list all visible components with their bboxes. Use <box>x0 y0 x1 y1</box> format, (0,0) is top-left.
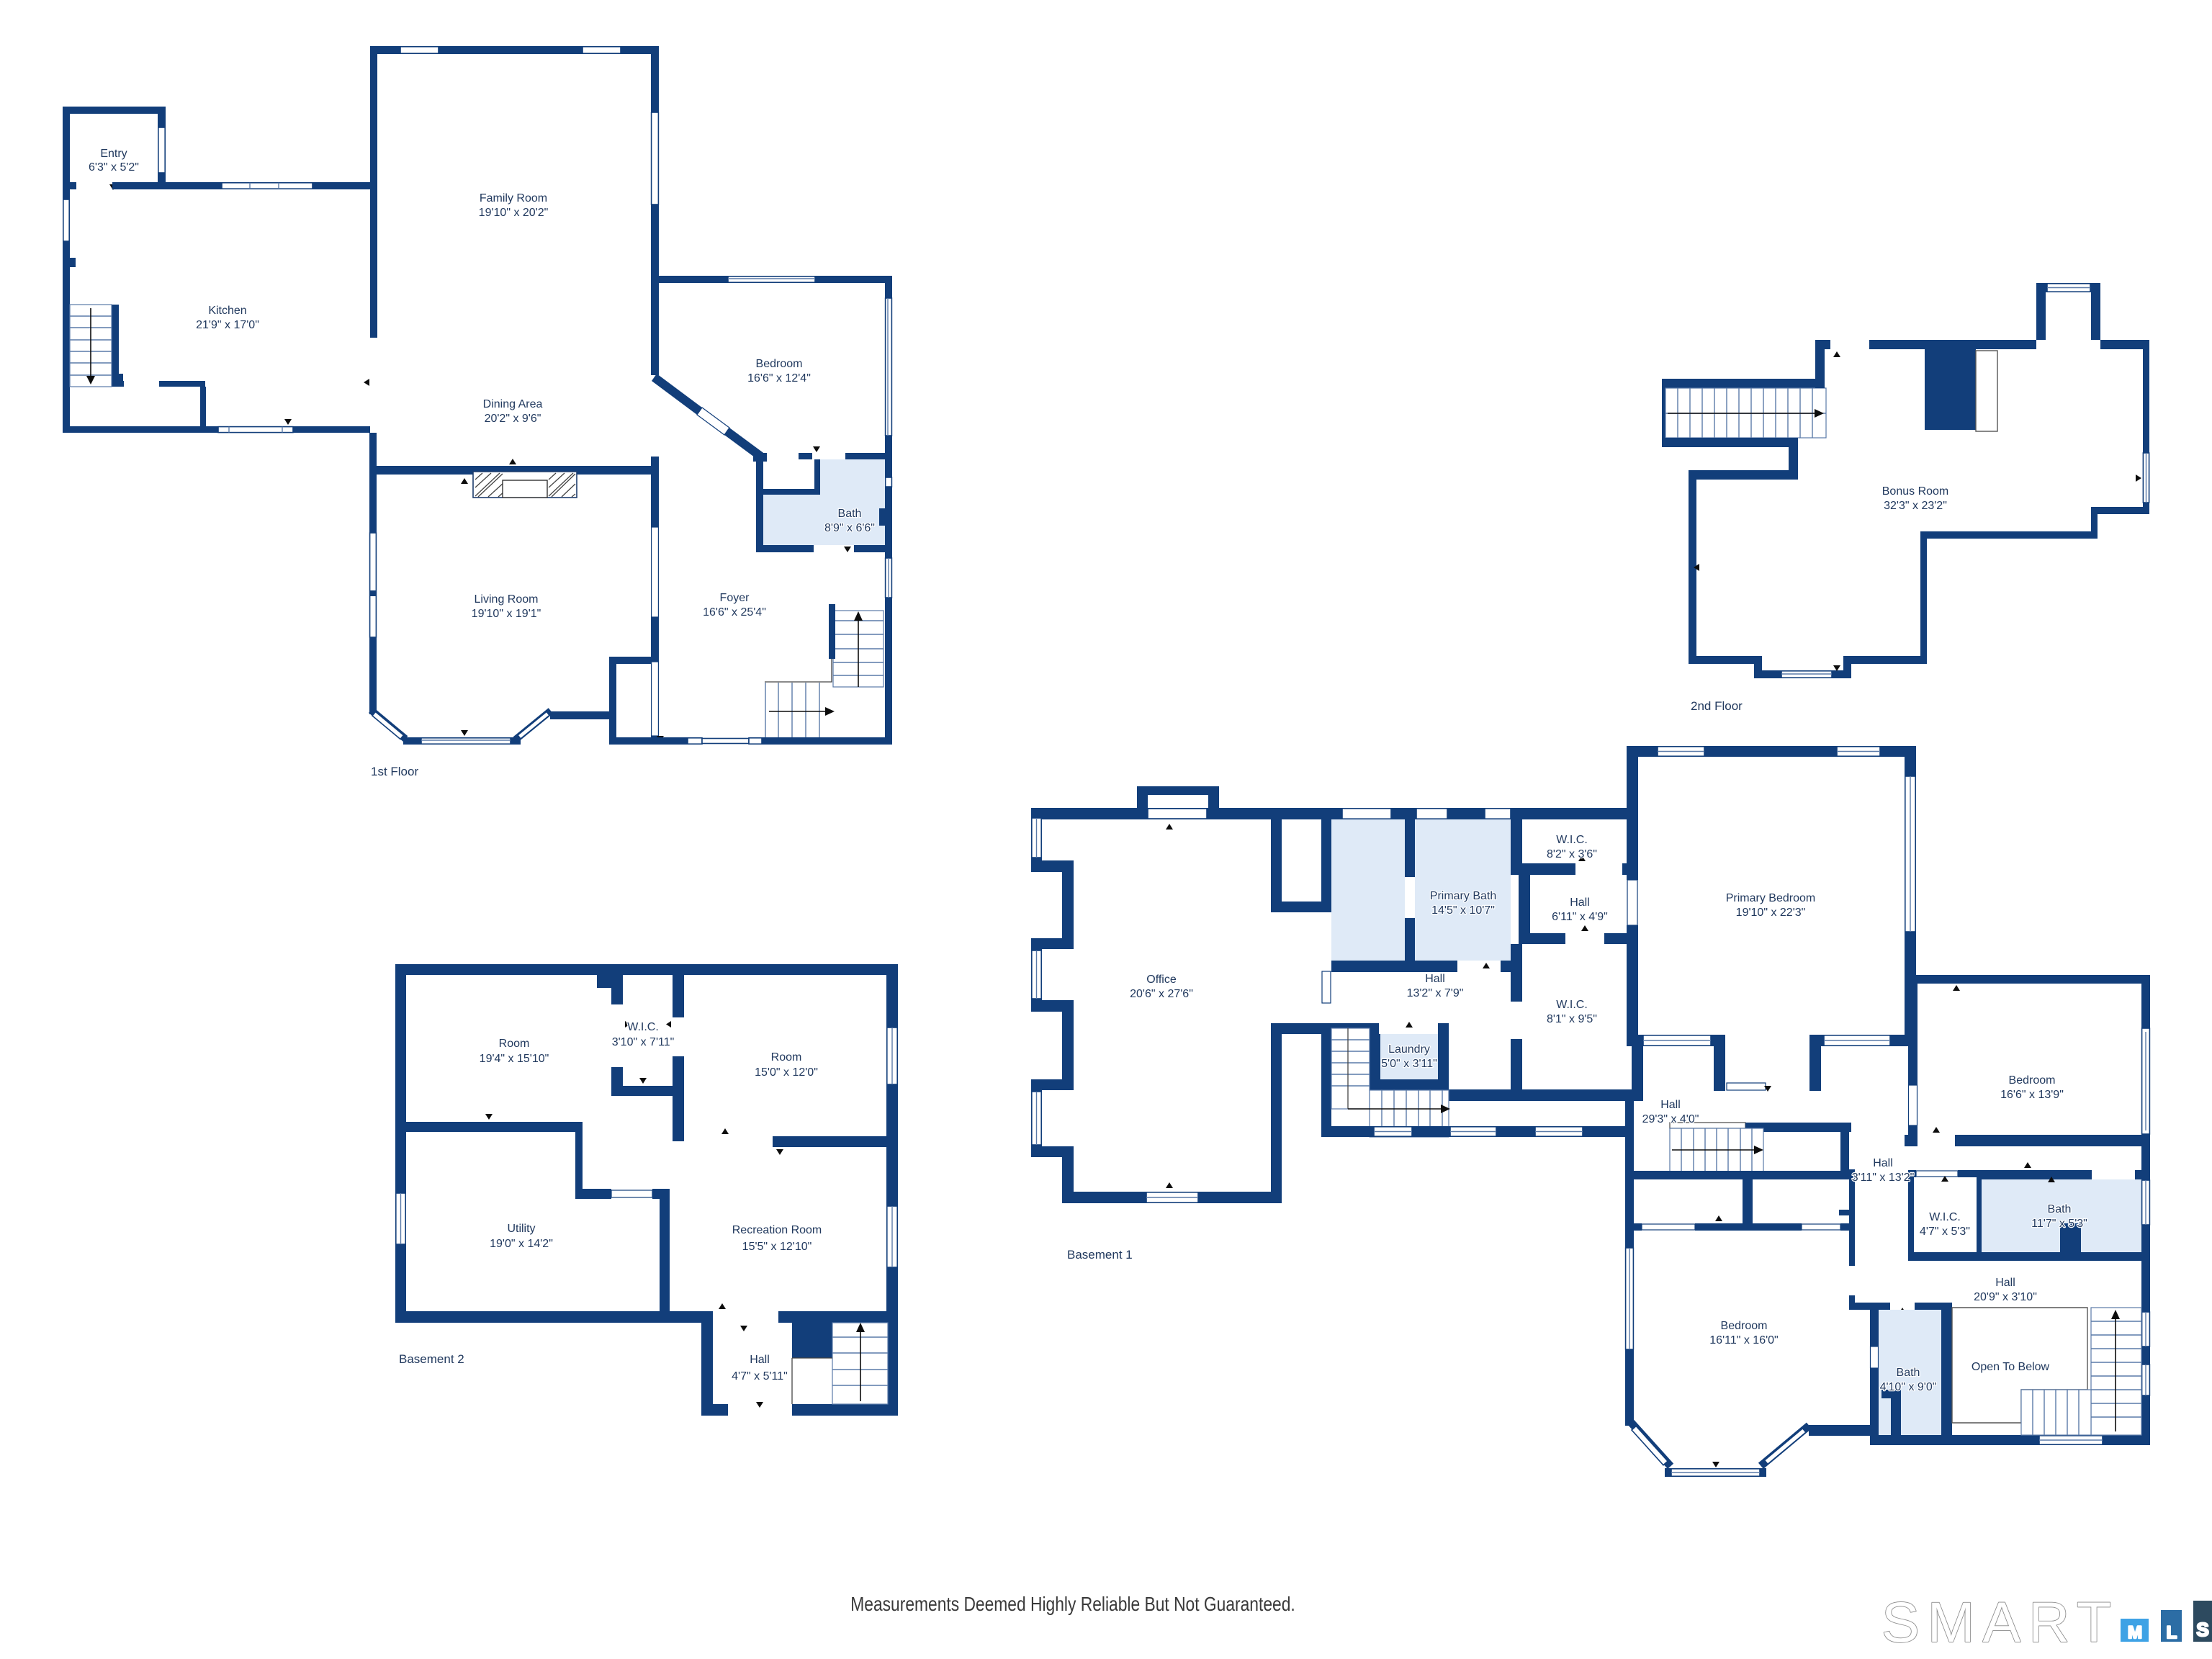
svg-text:Room: Room <box>771 1051 802 1064</box>
svg-text:4'10" x 9'0": 4'10" x 9'0" <box>1880 1381 1937 1393</box>
svg-text:19'10" x 19'1": 19'10" x 19'1" <box>472 608 541 620</box>
svg-text:19'0" x 14'2": 19'0" x 14'2" <box>490 1238 553 1250</box>
svg-text:2nd Floor: 2nd Floor <box>1691 699 1743 713</box>
svg-text:Laundry: Laundry <box>1388 1043 1430 1056</box>
svg-text:19'10" x 22'3": 19'10" x 22'3" <box>1736 907 1806 919</box>
svg-text:W.I.C.: W.I.C. <box>627 1021 659 1033</box>
svg-text:29'3" x 4'0": 29'3" x 4'0" <box>1642 1113 1699 1125</box>
svg-text:Hall: Hall <box>750 1354 770 1366</box>
svg-text:Bonus Room: Bonus Room <box>1882 485 1949 498</box>
svg-text:Primary Bath: Primary Bath <box>1430 890 1496 902</box>
svg-text:Bath: Bath <box>1897 1367 1920 1379</box>
svg-text:Bath: Bath <box>838 508 862 520</box>
svg-text:Office: Office <box>1146 974 1177 986</box>
svg-text:Measurements Deemed Highly Rel: Measurements Deemed Highly Reliable But … <box>850 1593 1295 1616</box>
svg-text:15'0" x 12'0": 15'0" x 12'0" <box>755 1066 818 1079</box>
svg-text:Bedroom: Bedroom <box>756 358 803 370</box>
svg-text:8'9" x 6'6": 8'9" x 6'6" <box>824 522 875 534</box>
svg-text:Basement 1: Basement 1 <box>1067 1248 1133 1262</box>
svg-text:16'11" x 16'0": 16'11" x 16'0" <box>1709 1334 1778 1346</box>
svg-text:L: L <box>2167 1623 2177 1642</box>
svg-text:Room: Room <box>499 1038 530 1050</box>
svg-text:16'6" x 13'9": 16'6" x 13'9" <box>2000 1089 2064 1101</box>
svg-text:Dining Area: Dining Area <box>483 398 543 410</box>
svg-text:4'7" x 5'11": 4'7" x 5'11" <box>732 1370 788 1382</box>
svg-text:Basement 2: Basement 2 <box>399 1352 464 1366</box>
svg-text:3'11" x 13'2": 3'11" x 13'2" <box>1852 1172 1915 1184</box>
svg-text:Foyer: Foyer <box>720 592 750 604</box>
svg-text:W.I.C.: W.I.C. <box>1556 834 1588 846</box>
svg-text:Family Room: Family Room <box>480 192 547 204</box>
svg-text:6'11" x 4'9": 6'11" x 4'9" <box>1552 911 1608 923</box>
svg-text:W.I.C.: W.I.C. <box>1929 1211 1961 1223</box>
svg-text:4'7" x 5'3": 4'7" x 5'3" <box>1920 1226 1970 1238</box>
svg-text:Utility: Utility <box>507 1223 535 1235</box>
svg-text:13'2" x 7'9": 13'2" x 7'9" <box>1407 987 1464 999</box>
svg-text:Hall: Hall <box>1425 973 1445 985</box>
svg-text:Bedroom: Bedroom <box>1721 1320 1768 1332</box>
svg-text:16'6" x 25'4": 16'6" x 25'4" <box>703 606 766 619</box>
svg-text:14'5" x 10'7": 14'5" x 10'7" <box>1431 904 1495 917</box>
svg-text:Primary Bedroom: Primary Bedroom <box>1726 892 1815 904</box>
svg-text:8'2" x 3'6": 8'2" x 3'6" <box>1547 848 1597 860</box>
svg-text:3'10" x 7'11": 3'10" x 7'11" <box>612 1036 675 1048</box>
svg-text:21'9" x 17'0": 21'9" x 17'0" <box>196 319 259 331</box>
svg-text:5'0" x 3'11": 5'0" x 3'11" <box>1381 1058 1437 1070</box>
svg-text:Living Room: Living Room <box>475 593 539 606</box>
svg-text:Recreation Room: Recreation Room <box>732 1224 822 1236</box>
svg-text:Hall: Hall <box>1995 1277 2015 1289</box>
svg-text:Bath: Bath <box>2048 1203 2072 1215</box>
svg-text:20'6" x 27'6": 20'6" x 27'6" <box>1130 988 1193 1000</box>
svg-text:Hall: Hall <box>1570 896 1590 909</box>
svg-text:Bedroom: Bedroom <box>2009 1074 2056 1087</box>
svg-text:W.I.C.: W.I.C. <box>1556 999 1588 1011</box>
svg-text:Hall: Hall <box>1873 1157 1893 1169</box>
svg-text:S: S <box>2196 1619 2208 1640</box>
svg-text:Hall: Hall <box>1660 1099 1681 1111</box>
svg-text:19'4" x 15'10": 19'4" x 15'10" <box>480 1053 549 1065</box>
svg-text:SMART: SMART <box>1881 1590 2119 1654</box>
svg-text:M: M <box>2128 1623 2142 1642</box>
svg-text:15'5" x 12'10": 15'5" x 12'10" <box>742 1241 812 1253</box>
svg-text:8'1" x 9'5": 8'1" x 9'5" <box>1547 1013 1597 1025</box>
svg-text:1st Floor: 1st Floor <box>371 765 418 778</box>
svg-text:19'10" x 20'2": 19'10" x 20'2" <box>479 207 549 219</box>
svg-text:Kitchen: Kitchen <box>208 305 246 317</box>
svg-text:32'3" x 23'2": 32'3" x 23'2" <box>1884 500 1947 512</box>
svg-text:Entry: Entry <box>100 148 127 160</box>
svg-text:Open To Below: Open To Below <box>1972 1361 2050 1373</box>
svg-text:20'9" x 3'10": 20'9" x 3'10" <box>1974 1291 2037 1303</box>
svg-text:6'3" x 5'2": 6'3" x 5'2" <box>89 161 139 174</box>
svg-text:20'2" x 9'6": 20'2" x 9'6" <box>485 413 541 425</box>
svg-text:16'6" x 12'4": 16'6" x 12'4" <box>747 372 811 385</box>
svg-text:11'7" x 5'3": 11'7" x 5'3" <box>2031 1218 2087 1230</box>
